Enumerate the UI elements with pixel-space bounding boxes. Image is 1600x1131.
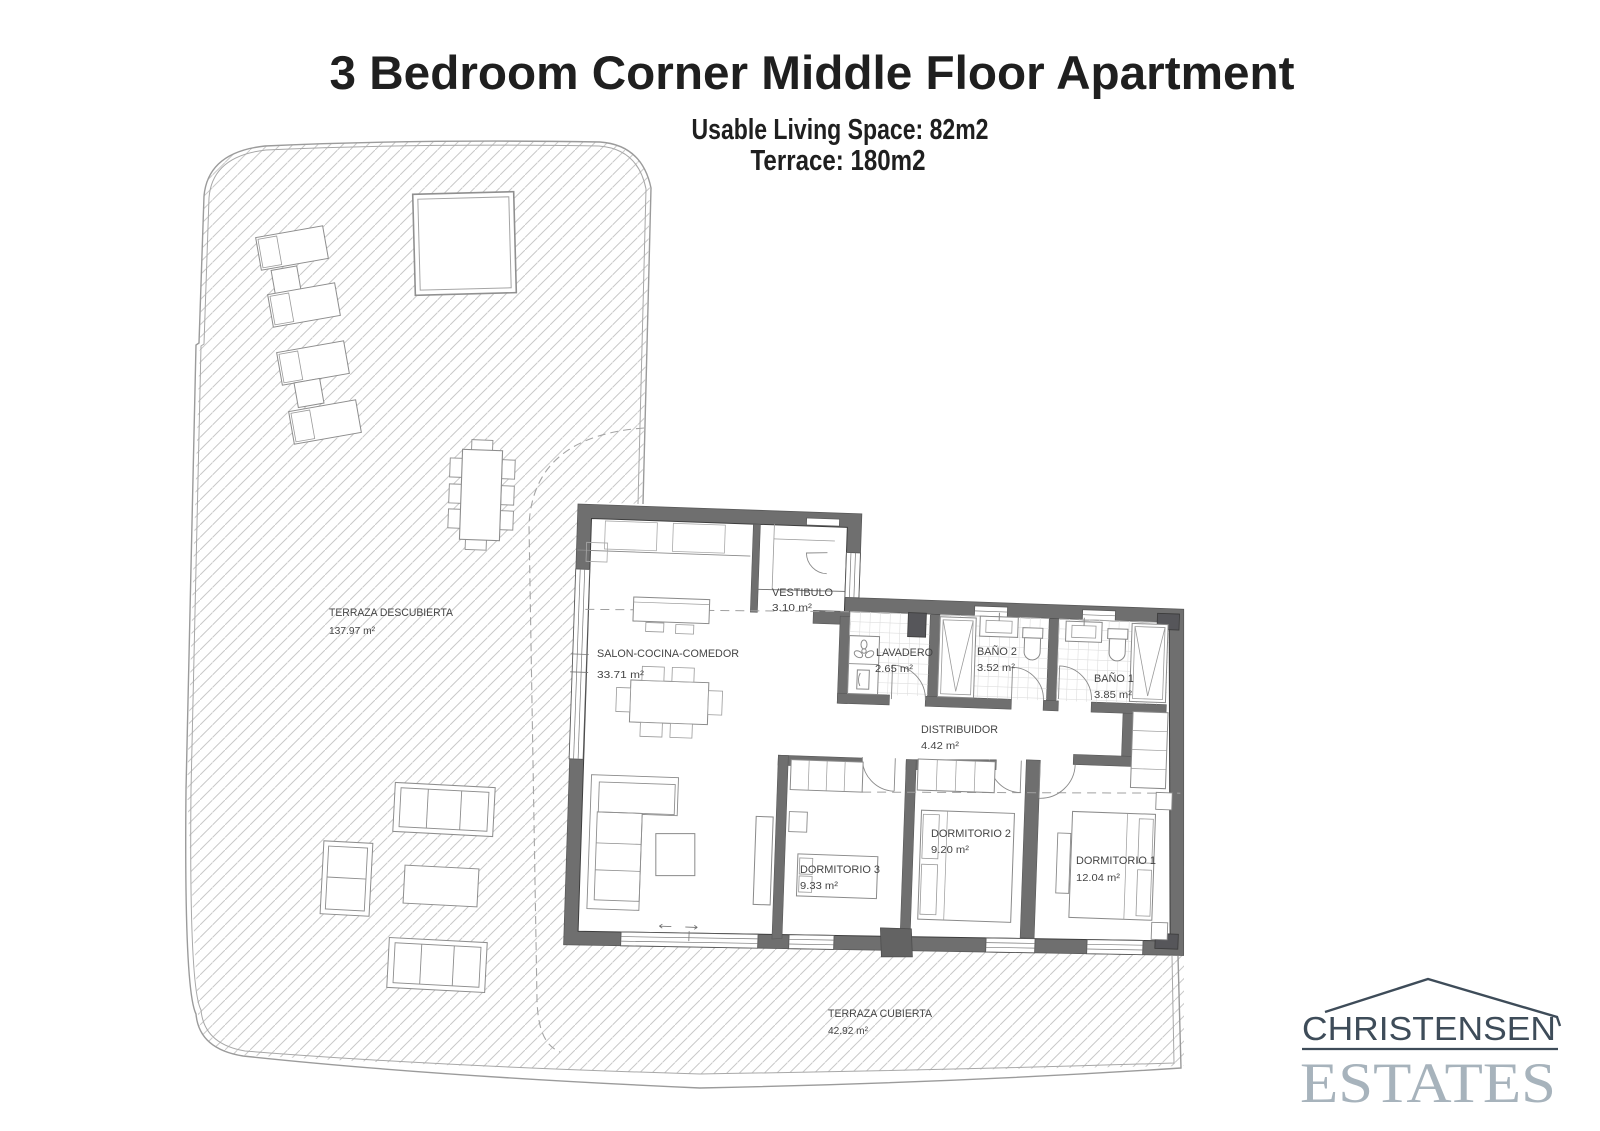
svg-text:33.71 m²: 33.71 m² <box>597 669 645 681</box>
svg-text:BAÑO 2: BAÑO 2 <box>977 645 1017 658</box>
svg-text:LAVADERO: LAVADERO <box>876 647 933 659</box>
svg-text:DORMITORIO 1: DORMITORIO 1 <box>1076 855 1156 867</box>
svg-text:DORMITORIO 2: DORMITORIO 2 <box>931 828 1011 840</box>
svg-text:3.10 m²: 3.10 m² <box>772 602 813 614</box>
svg-text:Terrace: 180m2: Terrace: 180m2 <box>751 145 926 177</box>
svg-text:3 Bedroom Corner Middle Floor: 3 Bedroom Corner Middle Floor Apartment <box>330 46 1295 99</box>
svg-text:SALON-COCINA-COMEDOR: SALON-COCINA-COMEDOR <box>597 648 739 660</box>
svg-text:BAÑO 1: BAÑO 1 <box>1094 672 1134 685</box>
svg-text:2.65 m²: 2.65 m² <box>875 663 914 675</box>
svg-text:CHRISTENSEN: CHRISTENSEN <box>1302 1010 1556 1047</box>
svg-text:12.04 m²: 12.04 m² <box>1076 872 1121 884</box>
svg-text:TERRAZA CUBIERTA: TERRAZA CUBIERTA <box>828 1008 933 1020</box>
svg-text:VESTIBULO: VESTIBULO <box>772 587 833 599</box>
svg-text:DORMITORIO 3: DORMITORIO 3 <box>800 864 880 876</box>
svg-text:3.52 m²: 3.52 m² <box>977 662 1016 674</box>
svg-text:4.42 m²: 4.42 m² <box>921 740 960 752</box>
svg-text:137.97 m²: 137.97 m² <box>329 625 375 637</box>
svg-text:ESTATES: ESTATES <box>1300 1052 1556 1115</box>
svg-text:3.85 m²: 3.85 m² <box>1094 689 1133 701</box>
svg-text:42.92 m²: 42.92 m² <box>828 1025 868 1037</box>
svg-text:9.33 m²: 9.33 m² <box>800 880 839 892</box>
svg-text:9.20 m²: 9.20 m² <box>931 844 970 856</box>
svg-text:DISTRIBUIDOR: DISTRIBUIDOR <box>921 724 998 736</box>
svg-text:Usable Living Space: 82m2: Usable Living Space: 82m2 <box>692 114 989 146</box>
svg-text:TERRAZA DESCUBIERTA: TERRAZA DESCUBIERTA <box>329 607 454 619</box>
